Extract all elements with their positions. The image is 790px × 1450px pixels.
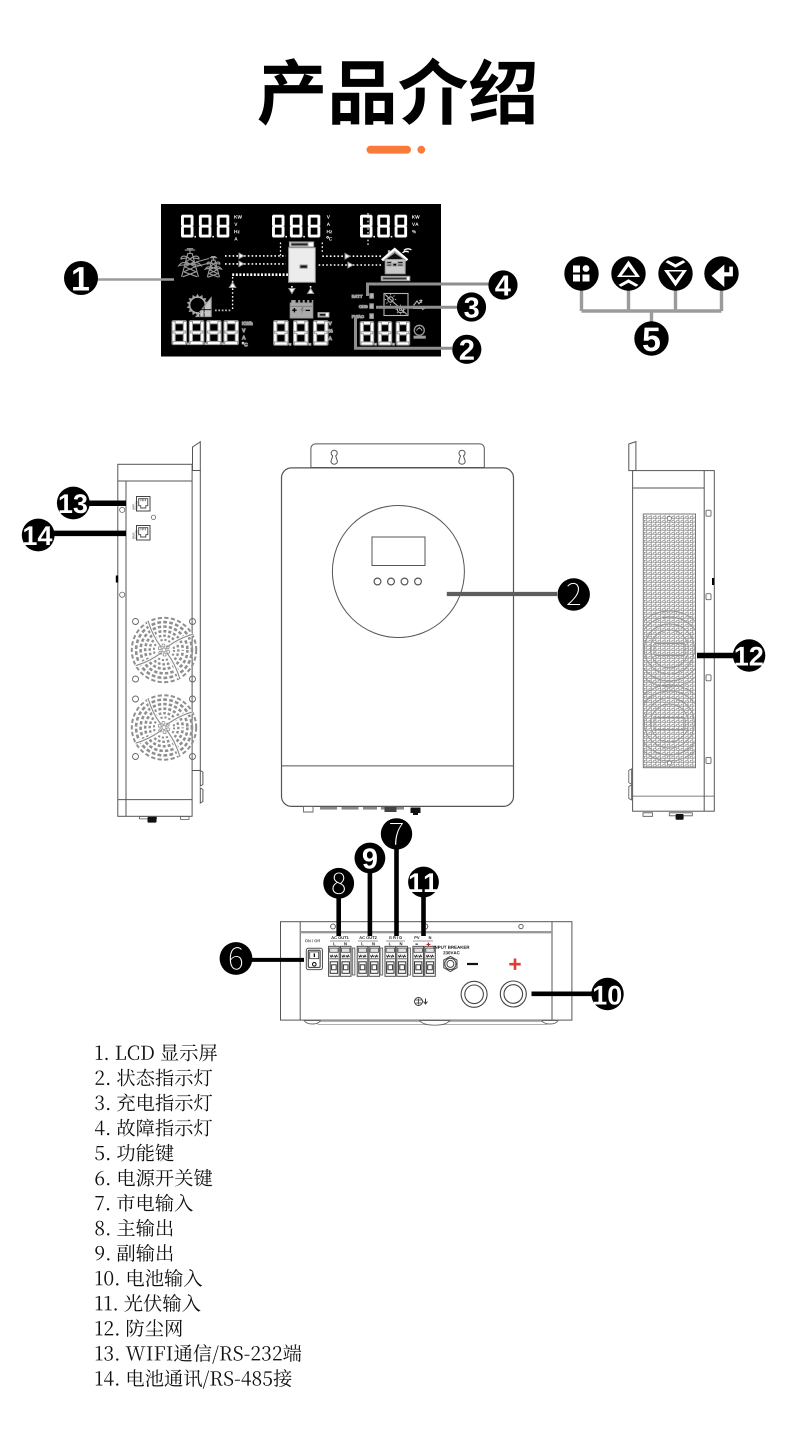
svg-text:RS485: RS485: [135, 529, 139, 539]
svg-text:RS232: RS232: [135, 500, 139, 510]
